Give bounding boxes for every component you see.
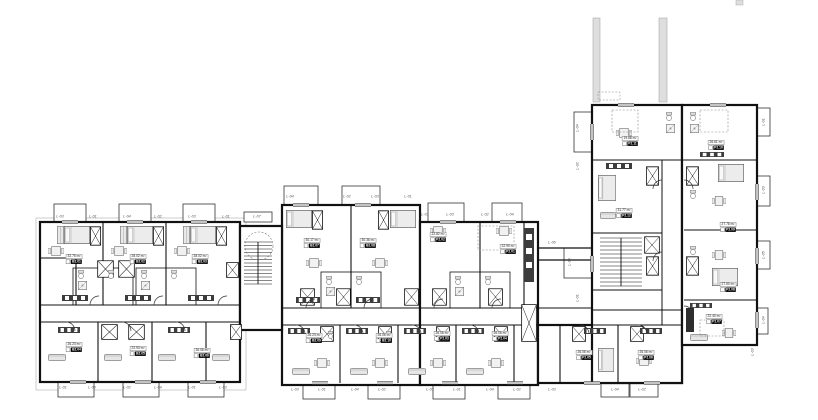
kitchen-counter	[346, 328, 368, 334]
toilet	[171, 270, 176, 278]
shaft-pier	[433, 289, 447, 306]
sofa	[600, 212, 615, 218]
window	[440, 220, 456, 223]
balcony	[630, 383, 658, 397]
elevator-shaft	[645, 237, 660, 254]
toilet	[502, 331, 507, 338]
window	[584, 381, 600, 384]
window	[590, 256, 593, 272]
shower	[141, 281, 150, 290]
kitchen-counter	[58, 327, 80, 333]
shaft-pier	[405, 289, 419, 306]
shaft-pier	[647, 167, 659, 185]
kitchen-sink	[526, 262, 532, 268]
balcony	[433, 385, 465, 399]
toilet	[386, 331, 391, 338]
window	[70, 380, 86, 383]
wing-outline-left	[40, 222, 240, 382]
floorplan-drawing	[0, 0, 818, 420]
window	[590, 124, 593, 140]
balcony	[368, 385, 400, 399]
kitchen-counter	[188, 295, 214, 301]
kitchen-sink	[526, 248, 532, 254]
bed	[718, 164, 743, 181]
toilet	[455, 276, 460, 284]
shower	[326, 287, 335, 296]
toilet	[690, 112, 695, 120]
kitchen-counter	[125, 295, 151, 301]
bed	[598, 175, 616, 200]
balcony	[58, 382, 94, 397]
shaft-pier	[647, 257, 659, 275]
balcony	[574, 112, 593, 152]
window	[500, 220, 516, 223]
shower	[455, 287, 464, 296]
shower	[78, 281, 87, 290]
balcony	[601, 383, 629, 397]
sofa	[48, 354, 65, 360]
shaft-pier	[522, 305, 537, 342]
window	[200, 380, 216, 383]
sofa	[690, 334, 707, 340]
balcony	[188, 382, 224, 397]
window	[355, 203, 371, 206]
kitchen-counter	[690, 303, 712, 308]
floorplan-canvas: L-03 L-01 L-04 L-02 L-03 L-01 L-07 L-01 …	[0, 0, 818, 420]
window	[191, 220, 207, 223]
balcony	[54, 204, 86, 222]
wardrobe	[183, 226, 189, 244]
balcony	[342, 186, 380, 205]
shaft-pier	[230, 325, 241, 340]
window	[127, 220, 143, 223]
shaft-pier	[227, 263, 239, 278]
toilet	[328, 331, 333, 338]
window	[644, 381, 660, 384]
shower	[690, 124, 699, 133]
toilet	[141, 270, 146, 278]
bed	[64, 226, 89, 243]
wardrobe-shaft	[216, 227, 226, 245]
bed	[190, 226, 215, 243]
balcony	[284, 186, 318, 205]
sofa	[158, 354, 175, 360]
toilet	[485, 276, 490, 284]
balcony	[498, 385, 530, 399]
kitchen-counter	[404, 328, 426, 334]
bed	[127, 226, 152, 243]
window	[507, 381, 523, 384]
balcony	[492, 203, 522, 222]
window	[710, 103, 726, 106]
window	[62, 220, 78, 223]
sofa	[104, 354, 121, 360]
toilet	[326, 276, 331, 284]
toilet	[356, 276, 361, 284]
toilet	[666, 112, 671, 120]
stair-connector-outline	[240, 226, 282, 330]
window	[312, 381, 328, 384]
kitchen-counter	[606, 163, 632, 169]
toilet	[108, 270, 113, 278]
balcony	[119, 204, 151, 222]
shaft-pier	[687, 167, 699, 185]
window	[377, 381, 393, 384]
window	[755, 312, 758, 328]
bed	[286, 210, 311, 227]
bed	[390, 210, 415, 227]
window	[618, 103, 634, 106]
kitchen-counter	[288, 328, 310, 334]
wardrobe	[57, 226, 63, 244]
kitchen-counter	[356, 297, 380, 303]
toilet	[444, 331, 449, 338]
kitchen-counter	[700, 152, 724, 157]
window	[755, 184, 758, 200]
toilet	[690, 190, 695, 198]
kitchen-counter	[168, 327, 190, 333]
bed	[598, 348, 614, 371]
sofa	[408, 368, 425, 374]
wardrobe-shaft	[90, 227, 100, 245]
shaft-pier	[119, 261, 135, 278]
wardrobe-shaft	[378, 211, 388, 229]
shaft-pier	[687, 257, 699, 275]
window	[293, 203, 309, 206]
window	[755, 248, 758, 264]
window	[442, 381, 458, 384]
wardrobe-shaft	[153, 227, 163, 245]
upper-floor-shaft-bars	[593, 0, 743, 102]
shaft-pier	[489, 289, 503, 306]
wardrobe-shaft	[312, 211, 322, 229]
balcony	[428, 203, 464, 222]
toilet	[690, 246, 695, 254]
balcony	[303, 385, 335, 399]
kitchen-counter	[462, 328, 484, 334]
bed	[712, 268, 737, 285]
shower	[666, 124, 675, 133]
balcony	[244, 212, 272, 222]
balcony	[183, 204, 215, 222]
wardrobe	[120, 226, 126, 244]
shaft-pier	[102, 325, 118, 340]
shaft-pier	[337, 289, 351, 306]
sofa	[292, 368, 309, 374]
toilet	[78, 270, 83, 278]
sofa	[212, 354, 229, 360]
window	[135, 380, 151, 383]
balcony	[564, 248, 592, 278]
shaft-pier	[573, 327, 586, 342]
kitchen-counter	[62, 295, 88, 301]
balcony	[123, 382, 159, 397]
bathtub	[686, 308, 694, 332]
kitchen-counter	[640, 328, 662, 334]
shaft-pier	[129, 325, 145, 340]
kitchen-sink	[526, 234, 532, 240]
sofa	[350, 368, 367, 374]
sofa	[466, 368, 483, 374]
